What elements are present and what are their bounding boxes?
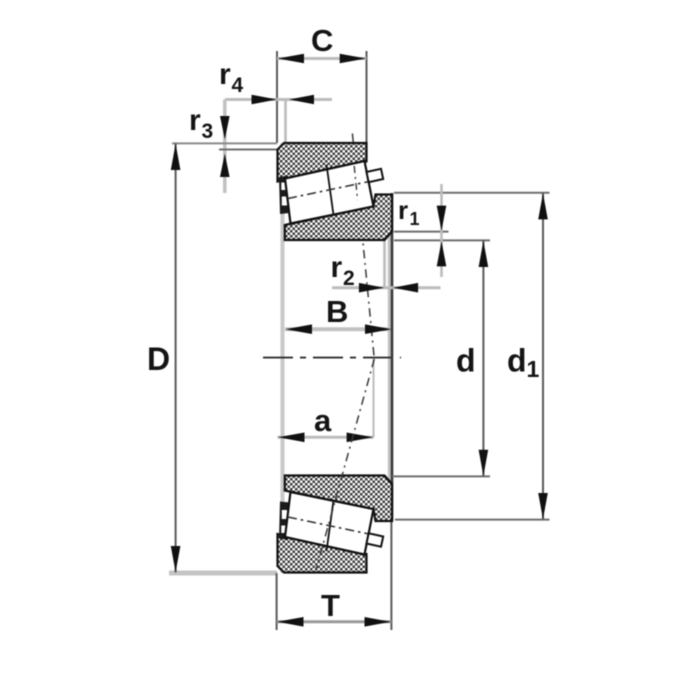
- svg-text:r: r: [331, 251, 343, 284]
- svg-text:D: D: [147, 341, 170, 377]
- svg-text:3: 3: [202, 120, 214, 143]
- svg-text:2: 2: [343, 267, 355, 290]
- svg-text:r: r: [398, 195, 408, 225]
- svg-text:4: 4: [232, 74, 244, 97]
- svg-text:r: r: [219, 58, 231, 91]
- svg-text:d: d: [507, 343, 527, 379]
- svg-text:1: 1: [410, 209, 420, 229]
- svg-text:1: 1: [527, 356, 540, 382]
- svg-text:a: a: [314, 403, 332, 438]
- svg-text:r: r: [189, 104, 201, 137]
- svg-text:B: B: [326, 294, 348, 329]
- svg-text:T: T: [321, 588, 340, 623]
- svg-text:d: d: [456, 343, 476, 379]
- svg-text:C: C: [311, 23, 333, 58]
